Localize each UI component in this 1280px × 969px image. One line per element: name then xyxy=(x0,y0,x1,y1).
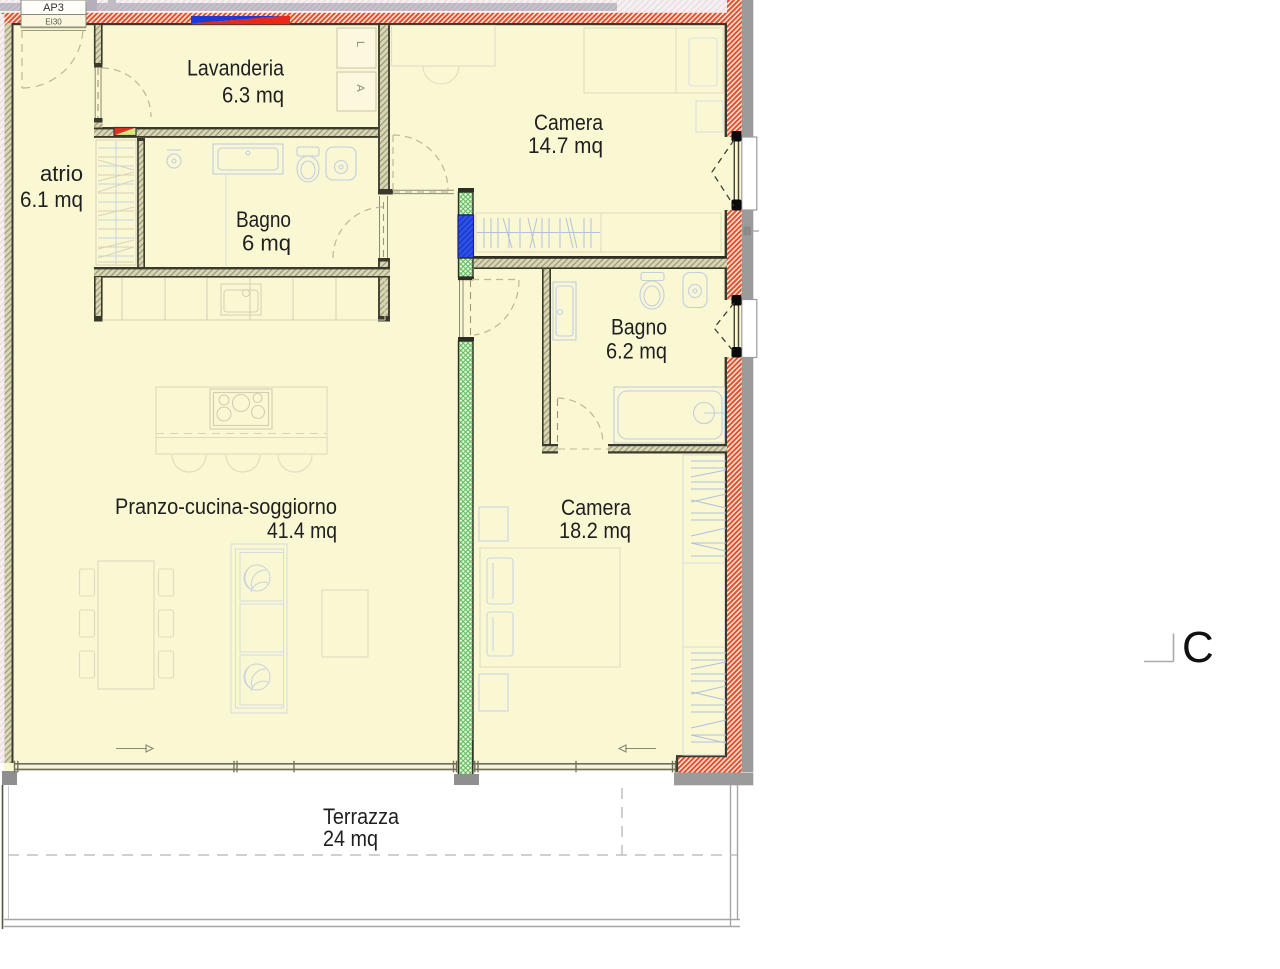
svg-text:6 mq: 6 mq xyxy=(242,231,291,256)
svg-text:6.1 mq: 6.1 mq xyxy=(20,187,83,212)
svg-text:6.3 mq: 6.3 mq xyxy=(222,83,284,108)
svg-text:AP3: AP3 xyxy=(43,2,64,14)
svg-text:Camera: Camera xyxy=(534,110,604,135)
svg-text:C: C xyxy=(1182,623,1214,672)
svg-text:18.2 mq: 18.2 mq xyxy=(559,518,631,543)
svg-text:L: L xyxy=(354,41,366,47)
svg-text:Camera: Camera xyxy=(561,495,632,520)
svg-text:atrio: atrio xyxy=(40,161,83,186)
svg-text:Bagno: Bagno xyxy=(611,315,667,340)
svg-text:A: A xyxy=(354,84,366,92)
svg-text:Bagno: Bagno xyxy=(236,207,291,232)
svg-text:Lavanderia: Lavanderia xyxy=(187,56,285,81)
svg-text:Pranzo-cucina-soggiorno: Pranzo-cucina-soggiorno xyxy=(115,494,337,519)
svg-text:6.2 mq: 6.2 mq xyxy=(606,339,667,364)
svg-text:14.7 mq: 14.7 mq xyxy=(528,133,603,158)
svg-text:EI30: EI30 xyxy=(45,18,62,27)
svg-text:41.4 mq: 41.4 mq xyxy=(267,518,337,543)
svg-text:24 mq: 24 mq xyxy=(323,826,378,851)
